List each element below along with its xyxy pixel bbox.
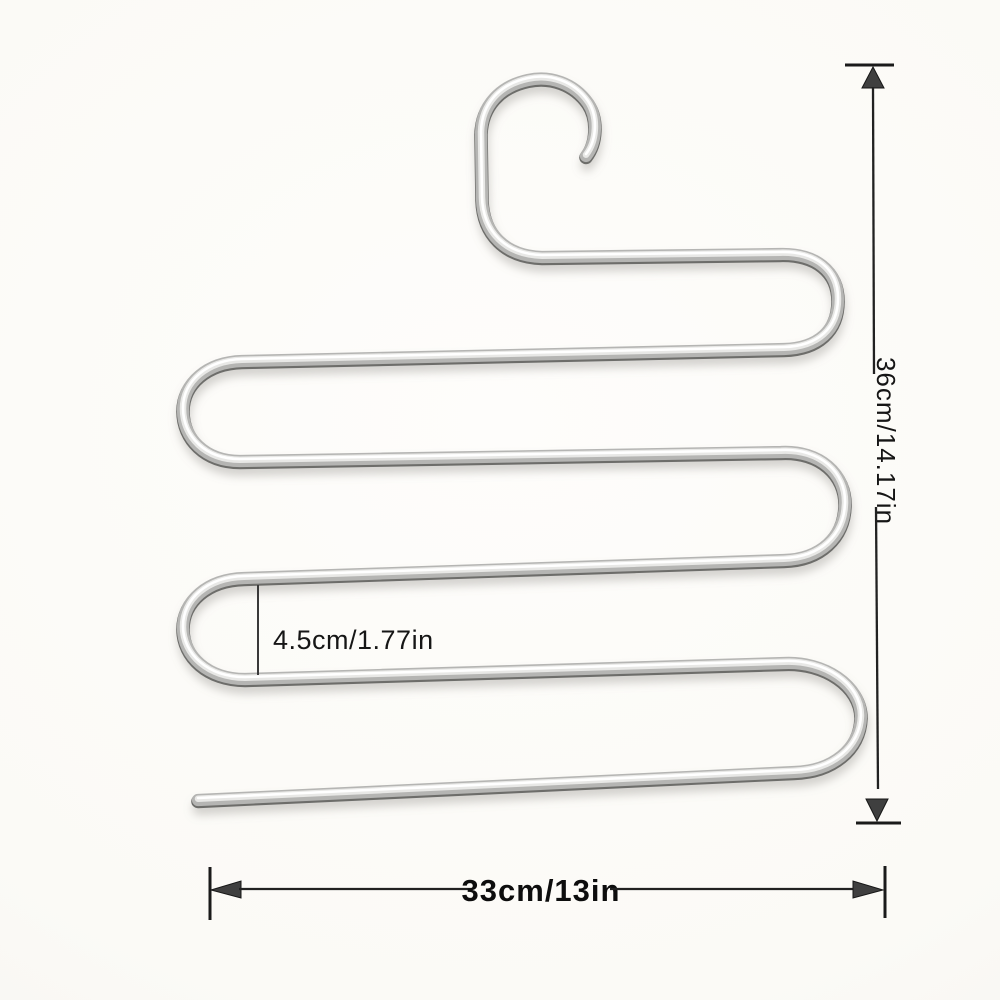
height-dimension-label: 36cm/14.17in bbox=[871, 357, 901, 525]
gap-dimension: 4.5cm/1.77in bbox=[258, 585, 434, 675]
arrow-left-icon bbox=[211, 881, 241, 898]
product-dimension-image: 36cm/14.17in 33cm/13in 4.5cm/1.77in bbox=[0, 0, 1000, 1000]
arrow-up-icon bbox=[862, 67, 884, 88]
hanger-wire-light bbox=[183, 77, 861, 798]
height-line-upper bbox=[873, 87, 874, 374]
height-line-lower bbox=[876, 507, 878, 789]
hanger-wire-shade bbox=[183, 80, 861, 801]
width-dimension-label: 33cm/13in bbox=[462, 873, 621, 908]
s-type-pants-hanger bbox=[183, 77, 861, 802]
hanger-wire-specular bbox=[183, 77, 861, 798]
width-dimension: 33cm/13in bbox=[210, 866, 885, 920]
arrow-right-icon bbox=[853, 881, 883, 898]
arrow-down-icon bbox=[866, 799, 888, 821]
gap-dimension-label: 4.5cm/1.77in bbox=[273, 625, 434, 655]
hanger-diagram-canvas: 36cm/14.17in 33cm/13in 4.5cm/1.77in bbox=[0, 0, 1000, 1000]
hanger-wire-body bbox=[183, 79, 861, 800]
